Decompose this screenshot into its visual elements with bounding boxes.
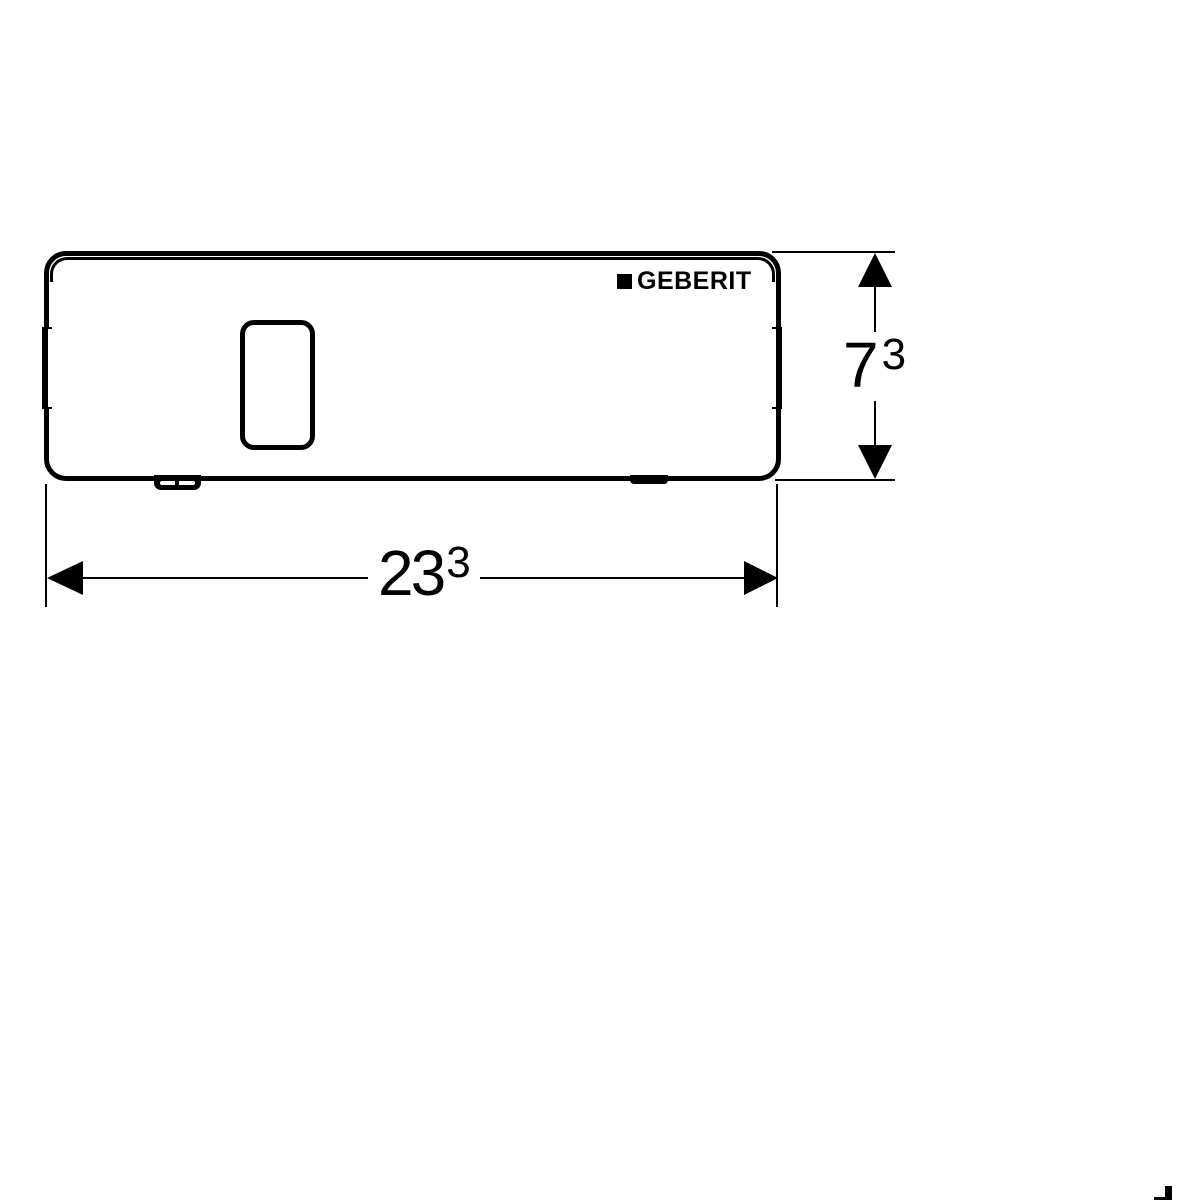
bottom-clip-secondary (630, 475, 668, 484)
dimension-lines (0, 0, 1200, 1200)
page-corner-mark (1154, 1186, 1172, 1200)
height-arrow-up-icon (858, 253, 892, 287)
corner-mark-bar (1165, 1186, 1172, 1200)
width-superscript: 3 (446, 541, 470, 585)
geberit-logo: GEBERIT (617, 269, 752, 294)
bottom-clip-slot (160, 481, 195, 485)
logo-square-icon (617, 274, 632, 289)
bottom-clip (154, 475, 201, 490)
device-outline: GEBERIT (44, 251, 781, 481)
drawing-canvas: GEBERIT (0, 0, 1200, 1200)
width-arrow-right-icon (744, 561, 778, 595)
bottom-clip-slot-divider (175, 481, 179, 485)
logo-text: GEBERIT (637, 269, 752, 294)
height-arrow-down-icon (858, 445, 892, 479)
height-value: 7 (843, 333, 879, 397)
width-value: 23 (378, 541, 443, 605)
right-mounting-clip (772, 327, 782, 409)
height-superscript: 3 (882, 333, 906, 377)
height-dimension-label: 7 3 (843, 333, 906, 397)
width-arrow-left-icon (47, 561, 83, 595)
left-mounting-clip (42, 327, 52, 409)
width-dimension-label: 23 3 (378, 541, 471, 605)
sensor-window (240, 320, 315, 450)
